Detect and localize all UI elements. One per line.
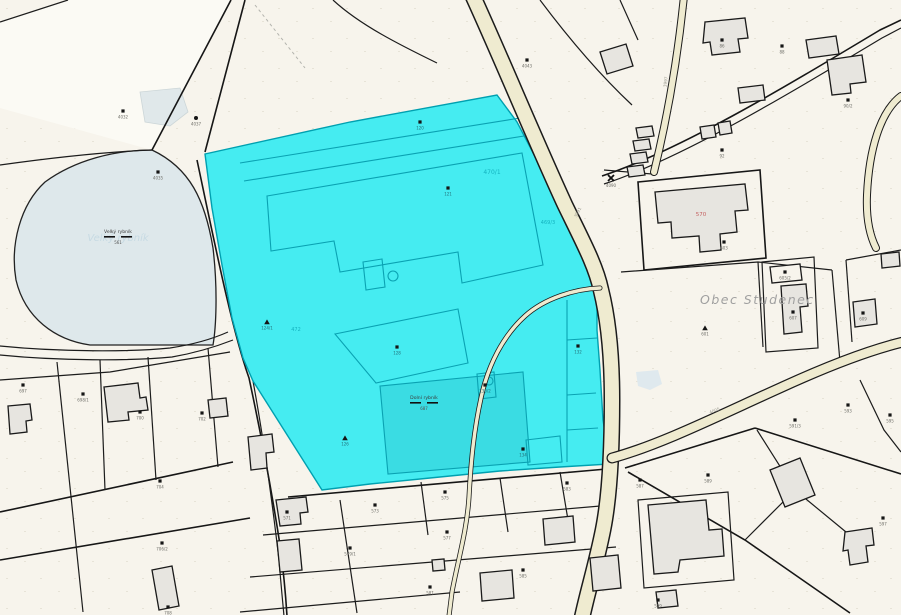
svg-text:708: 708 [164, 611, 172, 615]
svg-text:587: 587 [636, 484, 644, 489]
svg-text:132: 132 [574, 350, 582, 355]
svg-text:120: 120 [416, 126, 424, 131]
svg-text:591/3: 591/3 [789, 424, 801, 429]
cadastral-map-viewport[interactable]: 4090 4032 4035 4037 697 698/1 700 702 70… [0, 0, 901, 615]
svg-text:4032: 4032 [118, 115, 129, 120]
svg-text:589: 589 [704, 479, 712, 484]
svg-text:126: 126 [341, 442, 349, 447]
svg-text:575: 575 [441, 496, 449, 501]
selected-parcel-number: 469/3 [541, 220, 555, 226]
svg-text:90/2: 90/2 [844, 104, 853, 109]
svg-text:134: 134 [519, 453, 527, 458]
svg-text:599: 599 [654, 604, 662, 609]
svg-text:605/2: 605/2 [779, 276, 791, 281]
svg-text:706/2: 706/2 [156, 547, 168, 552]
svg-text:128: 128 [393, 351, 401, 356]
svg-text:124/1: 124/1 [261, 326, 273, 331]
svg-text:121: 121 [444, 192, 452, 197]
svg-text:687: 687 [420, 406, 428, 411]
selected-subparcel-water [380, 372, 530, 474]
svg-text:603: 603 [720, 246, 728, 251]
svg-text:577: 577 [443, 536, 451, 541]
svg-text:4090: 4090 [606, 183, 617, 188]
svg-text:609: 609 [859, 317, 867, 322]
svg-text:130/2: 130/2 [479, 389, 491, 394]
svg-text:571: 571 [283, 516, 291, 521]
svg-text:704: 704 [156, 485, 164, 490]
svg-text:585: 585 [519, 574, 527, 579]
svg-text:607: 607 [789, 316, 797, 321]
building-parcel-number: 570 [696, 212, 707, 218]
svg-text:4035: 4035 [153, 176, 164, 181]
svg-text:Dolní rybník: Dolní rybník [410, 394, 438, 401]
svg-text:700: 700 [136, 416, 144, 421]
svg-text:573: 573 [371, 509, 379, 514]
svg-text:92: 92 [719, 154, 725, 159]
cadastral-map[interactable]: 4090 4032 4035 4037 697 698/1 700 702 70… [0, 0, 901, 615]
svg-text:698/1: 698/1 [77, 398, 89, 403]
svg-text:583: 583 [563, 487, 571, 492]
svg-text:697: 697 [19, 389, 27, 394]
selected-parcel-number: 472 [291, 327, 301, 333]
municipality-label: Obec Studenec [700, 292, 815, 307]
svg-text:581: 581 [426, 591, 434, 596]
svg-text:595: 595 [886, 419, 894, 424]
svg-text:88: 88 [779, 50, 785, 55]
svg-text:597: 597 [879, 522, 887, 527]
svg-text:601: 601 [701, 332, 709, 337]
svg-text:Velký rybník: Velký rybník [104, 228, 132, 235]
svg-text:702: 702 [198, 417, 206, 422]
svg-text:4043: 4043 [522, 64, 533, 69]
svg-text:4037: 4037 [191, 122, 202, 127]
selected-parcel-number: 470/1 [483, 169, 500, 176]
svg-text:579/1: 579/1 [344, 552, 356, 557]
svg-text:561: 561 [114, 240, 122, 245]
svg-text:86: 86 [719, 44, 725, 49]
svg-text:593: 593 [844, 409, 852, 414]
